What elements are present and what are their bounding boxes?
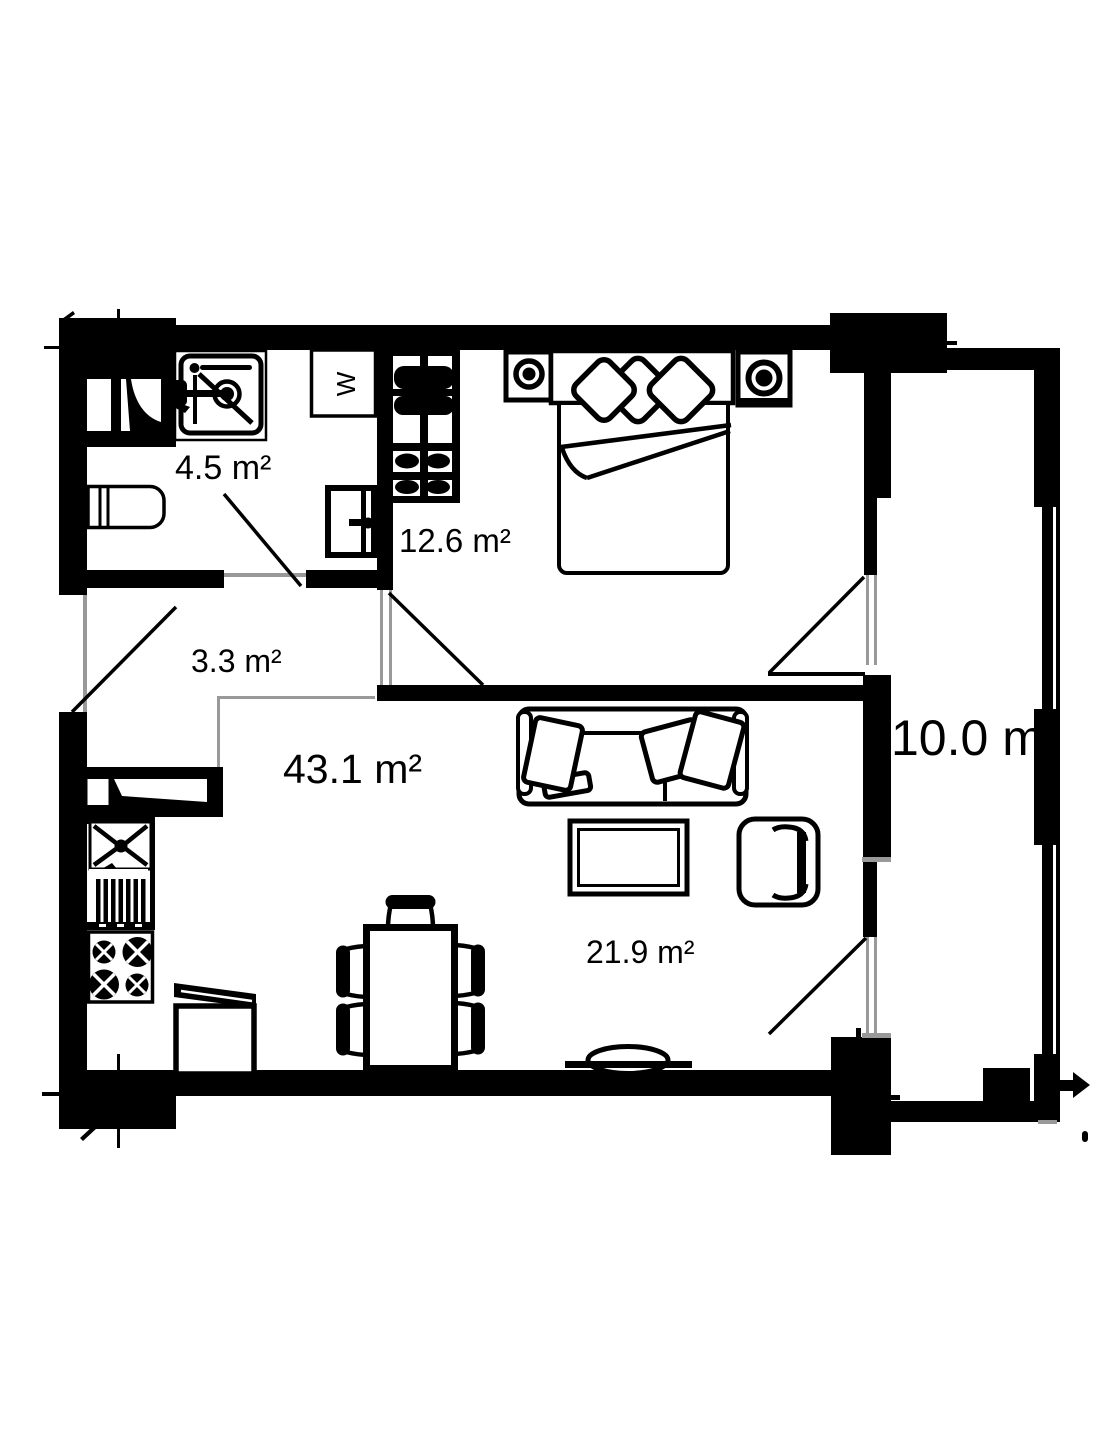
- svg-text:3.3 m²: 3.3 m²: [191, 643, 282, 679]
- svg-text:21.9 m²: 21.9 m²: [586, 934, 695, 970]
- svg-text:10.0 m: 10.0 m: [891, 710, 1044, 766]
- svg-text:12.6 m²: 12.6 m²: [399, 522, 511, 559]
- svg-text:W: W: [331, 371, 361, 396]
- svg-text:4.5 m²: 4.5 m²: [175, 449, 271, 487]
- svg-text:43.1 m²: 43.1 m²: [283, 746, 422, 792]
